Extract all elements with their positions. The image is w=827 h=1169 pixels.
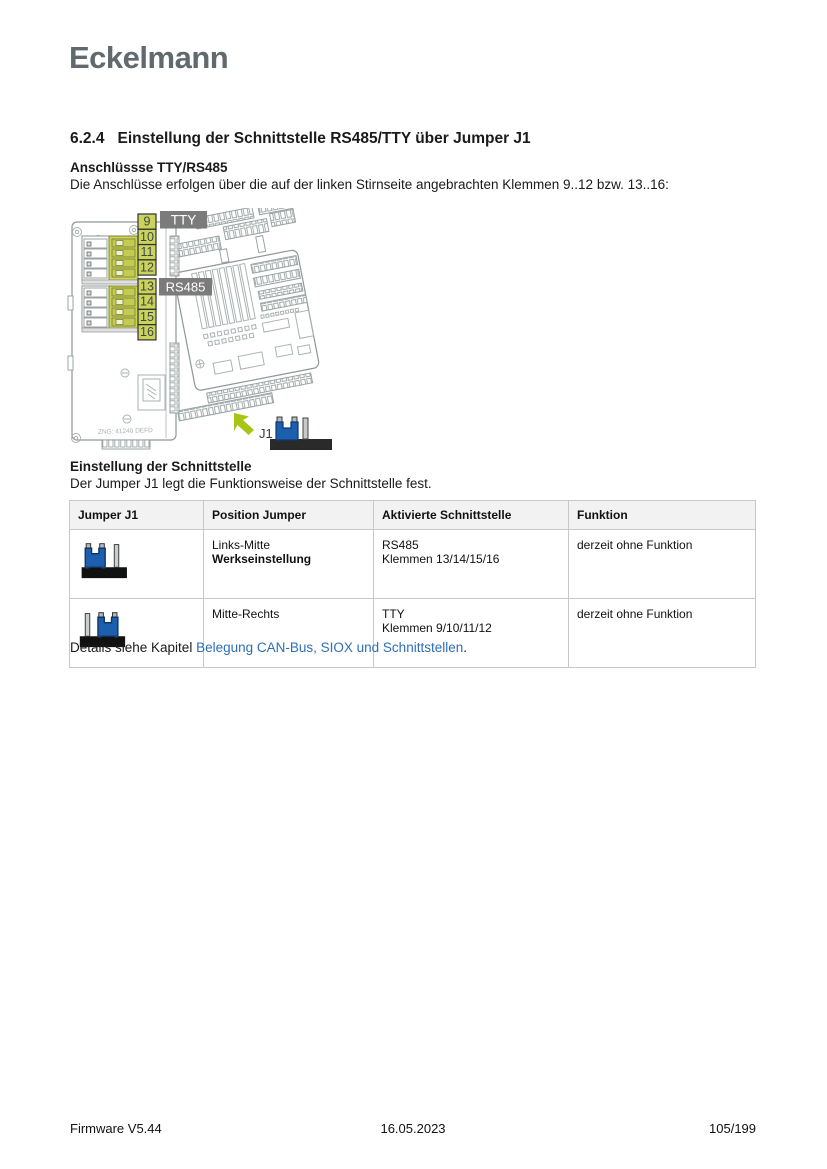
schnittstelle-line2: Klemmen 13/14/15/16 bbox=[382, 552, 560, 566]
jumper-links-mitte-image bbox=[78, 538, 136, 582]
device-diagram: ZNG: 41240 DEFD 9 10 11 12 13 14 15 16 T… bbox=[66, 208, 342, 456]
einstellung-heading: Einstellung der Schnittstelle bbox=[70, 459, 252, 474]
schnittstelle-cell: TTY Klemmen 9/10/11/12 bbox=[374, 599, 569, 668]
col-header-position: Position Jumper bbox=[204, 501, 374, 530]
section-title: Einstellung der Schnittstelle RS485/TTY … bbox=[117, 130, 530, 148]
page-footer: Firmware V5.44 16.05.2023 105/199 bbox=[70, 1121, 756, 1136]
board-drawing: ZNG: 41240 DEFD 9 10 11 12 13 14 15 16 T… bbox=[66, 208, 342, 456]
schnittstelle-cell: RS485 Klemmen 13/14/15/16 bbox=[374, 530, 569, 599]
chapter-link[interactable]: Belegung CAN-Bus, SIOX und Schnittstelle… bbox=[196, 640, 463, 655]
schnittstelle-line2: Klemmen 9/10/11/12 bbox=[382, 621, 560, 635]
funktion-cell: derzeit ohne Funktion bbox=[569, 599, 756, 668]
table-row: Mitte-Rechts TTY Klemmen 9/10/11/12 derz… bbox=[70, 599, 756, 668]
details-line: Details siehe Kapitel Belegung CAN-Bus, … bbox=[70, 640, 467, 655]
position-text: Links-Mitte bbox=[212, 538, 365, 552]
green-arrow-icon bbox=[234, 413, 254, 435]
col-header-funktion: Funktion bbox=[569, 501, 756, 530]
eckelmann-logo: Eckelmann bbox=[69, 40, 228, 76]
terminal-number: 11 bbox=[141, 245, 154, 259]
anschluesse-body: Die Anschlüsse erfolgen über die auf der… bbox=[70, 177, 669, 192]
schnittstelle-line1: TTY bbox=[382, 607, 560, 621]
position-text: Mitte-Rechts bbox=[212, 607, 365, 621]
terminal-number: 12 bbox=[140, 260, 154, 274]
einstellung-body: Der Jumper J1 legt die Funktionsweise de… bbox=[70, 476, 432, 491]
position-cell: Mitte-Rechts bbox=[204, 599, 374, 668]
terminal-number: 14 bbox=[140, 295, 154, 309]
terminal-number: 13 bbox=[140, 279, 154, 293]
table-header-row: Jumper J1 Position Jumper Aktivierte Sch… bbox=[70, 501, 756, 530]
funktion-cell: derzeit ohne Funktion bbox=[569, 530, 756, 599]
position-cell: Links-Mitte Werkseinstellung bbox=[204, 530, 374, 599]
section-number: 6.2.4 bbox=[70, 130, 104, 148]
schnittstelle-line1: RS485 bbox=[382, 538, 560, 552]
terminal-number: 16 bbox=[140, 325, 154, 339]
terminal-number: 10 bbox=[140, 230, 154, 244]
terminal-number: 15 bbox=[140, 310, 154, 324]
footer-page-number: 105/199 bbox=[527, 1121, 756, 1136]
position-bold-text: Werkseinstellung bbox=[212, 552, 365, 566]
footer-date: 16.05.2023 bbox=[299, 1121, 528, 1136]
terminal-block-tty bbox=[82, 236, 138, 284]
jumper-image-cell bbox=[70, 530, 204, 599]
terminal-number: 9 bbox=[144, 215, 151, 229]
rs485-label: RS485 bbox=[166, 280, 206, 295]
col-header-schnittstelle: Aktivierte Schnittstelle bbox=[374, 501, 569, 530]
j1-label: J1 bbox=[259, 426, 273, 441]
front-panel: ZNG: 41240 DEFD bbox=[68, 222, 179, 449]
jumper-icon bbox=[270, 417, 332, 450]
details-prefix: Details siehe Kapitel bbox=[70, 640, 196, 655]
tty-label: TTY bbox=[171, 213, 197, 228]
anschluesse-heading: Anschlüssse TTY/RS485 bbox=[70, 160, 228, 175]
j1-callout: J1 bbox=[234, 413, 332, 450]
col-header-jumper-j1: Jumper J1 bbox=[70, 501, 204, 530]
section-heading: 6.2.4 Einstellung der Schnittstelle RS48… bbox=[70, 130, 531, 148]
details-suffix: . bbox=[463, 640, 467, 655]
table-row: Links-Mitte Werkseinstellung RS485 Klemm… bbox=[70, 530, 756, 599]
terminal-block-rs485 bbox=[82, 286, 138, 332]
jumper-image-cell bbox=[70, 599, 204, 668]
footer-firmware: Firmware V5.44 bbox=[70, 1121, 299, 1136]
